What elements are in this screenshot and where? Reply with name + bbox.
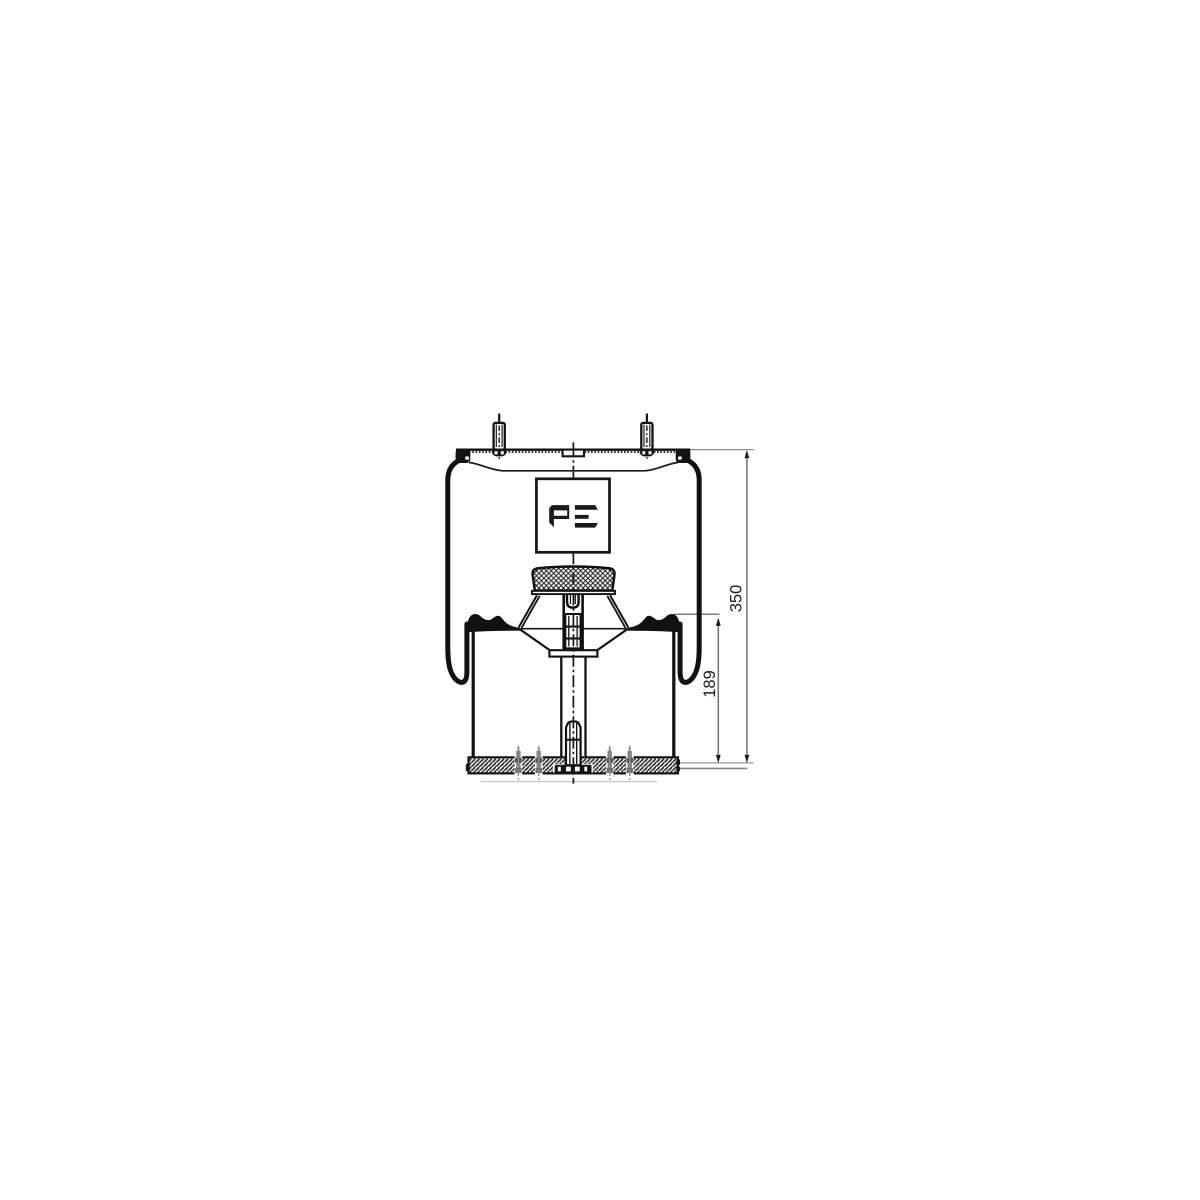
svg-text:189: 189: [701, 670, 719, 698]
svg-text:350: 350: [727, 585, 745, 613]
